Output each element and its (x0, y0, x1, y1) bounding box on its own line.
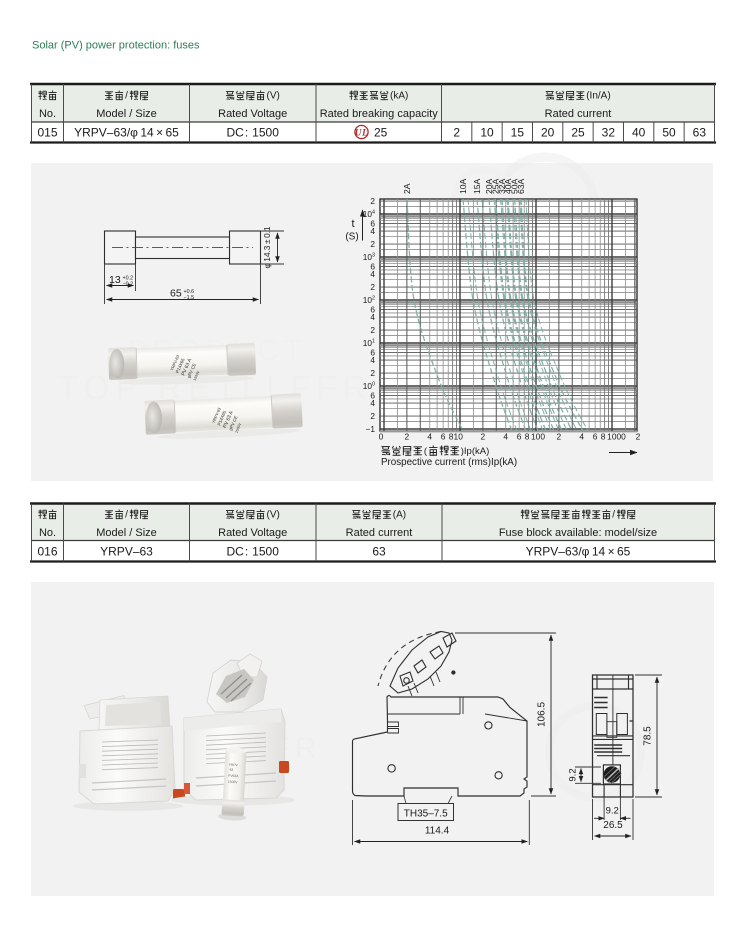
svg-text:Fuse block available: model/si: Fuse block available: model/size (499, 527, 657, 539)
svg-text:6: 6 (593, 432, 598, 442)
svg-text:/: / (125, 91, 128, 102)
svg-text:4: 4 (370, 226, 375, 236)
svg-text:t: t (351, 218, 354, 230)
svg-text:100: 100 (531, 432, 545, 442)
svg-text:2: 2 (636, 432, 641, 442)
svg-text:20: 20 (541, 126, 555, 140)
svg-text:U L: U L (355, 128, 368, 138)
svg-text:(kA): (kA) (390, 91, 408, 102)
svg-text:2: 2 (370, 411, 375, 421)
svg-text:(In/A): (In/A) (586, 91, 610, 102)
svg-text:4: 4 (370, 269, 375, 279)
svg-text:016: 016 (37, 545, 57, 559)
svg-text:2A: 2A (402, 183, 412, 194)
svg-text:26.5: 26.5 (603, 820, 623, 831)
svg-text:2: 2 (453, 126, 460, 140)
svg-text:78.5: 78.5 (643, 726, 654, 746)
svg-text:63: 63 (372, 545, 386, 559)
svg-text:15: 15 (511, 126, 525, 140)
svg-text:Rated breaking capacity: Rated breaking capacity (320, 108, 439, 120)
svg-text:9.2: 9.2 (568, 768, 579, 781)
svg-text:No.: No. (39, 527, 56, 539)
svg-text:YRPV–63: YRPV–63 (100, 545, 153, 559)
svg-text:Rated Voltage: Rated Voltage (218, 108, 287, 120)
svg-text:4: 4 (370, 355, 375, 365)
svg-text:−1.5: −1.5 (184, 295, 195, 301)
svg-text:8: 8 (601, 432, 606, 442)
svg-text:4: 4 (579, 432, 584, 442)
svg-text:015: 015 (37, 126, 57, 140)
svg-text:−0.2: −0.2 (123, 281, 134, 287)
svg-text:Model / Size: Model / Size (96, 108, 157, 120)
svg-text:2: 2 (557, 432, 562, 442)
svg-text:Prospective current (rms)Ip(kA: Prospective current (rms)Ip(kA) (381, 457, 517, 468)
svg-text:25: 25 (374, 126, 388, 140)
svg-text:(A): (A) (393, 510, 406, 521)
svg-text:/: / (125, 510, 128, 521)
svg-text:6: 6 (441, 432, 446, 442)
svg-text:4: 4 (503, 432, 508, 442)
svg-text:YRPV–63/φ 14 × 65: YRPV–63/φ 14 × 65 (526, 545, 631, 559)
svg-text:1500V: 1500V (228, 780, 239, 785)
svg-text:32: 32 (602, 126, 616, 140)
svg-text:PV63A: PV63A (228, 774, 239, 779)
svg-text:2: 2 (370, 196, 375, 206)
svg-text:YRPV–63/φ 14 × 65: YRPV–63/φ 14 × 65 (74, 126, 179, 140)
svg-text:40: 40 (632, 126, 646, 140)
svg-text:4: 4 (370, 312, 375, 322)
svg-text:10: 10 (480, 126, 494, 140)
svg-text:Model / Size: Model / Size (96, 527, 157, 539)
svg-text:(V): (V) (266, 510, 279, 521)
svg-text:25: 25 (571, 126, 585, 140)
svg-text:114.4: 114.4 (425, 826, 450, 837)
svg-text:1000: 1000 (607, 432, 626, 442)
svg-text:−1: −1 (366, 424, 376, 434)
svg-text:15A: 15A (472, 178, 482, 194)
svg-text:(V): (V) (266, 91, 279, 102)
svg-text:Rated current: Rated current (545, 108, 612, 120)
svg-text:2: 2 (370, 239, 375, 249)
svg-text:Rated current: Rated current (346, 527, 413, 539)
svg-text:10: 10 (454, 432, 464, 442)
svg-text:50: 50 (662, 126, 676, 140)
svg-text:0: 0 (379, 432, 384, 442)
svg-text:YRPV: YRPV (229, 763, 239, 768)
svg-text:(S): (S) (345, 232, 358, 243)
svg-text:Rated Voltage: Rated Voltage (218, 527, 287, 539)
svg-text:)Ip(kA): )Ip(kA) (461, 446, 490, 457)
svg-text:-63: -63 (228, 768, 233, 772)
svg-text:63: 63 (693, 126, 707, 140)
svg-text:63A: 63A (516, 178, 526, 194)
svg-text:8: 8 (525, 432, 530, 442)
svg-text:10A: 10A (458, 178, 468, 194)
svg-text:13: 13 (109, 274, 121, 286)
svg-text:2: 2 (405, 432, 410, 442)
svg-text:/: / (612, 510, 615, 521)
svg-text:φ 14.3 ± 0.1: φ 14.3 ± 0.1 (263, 226, 272, 268)
svg-text:2: 2 (370, 325, 375, 335)
svg-text:DC : 1500: DC : 1500 (227, 545, 280, 559)
svg-text:6: 6 (517, 432, 522, 442)
svg-text:Solar (PV) power protection: f: Solar (PV) power protection: fuses (32, 40, 200, 52)
svg-text:106.5: 106.5 (537, 702, 548, 727)
svg-text:2: 2 (481, 432, 486, 442)
svg-text:2: 2 (370, 368, 375, 378)
svg-text:2: 2 (370, 282, 375, 292)
svg-text:DC : 1500: DC : 1500 (227, 126, 280, 140)
svg-text:9.2: 9.2 (606, 806, 619, 817)
svg-text:4: 4 (370, 398, 375, 408)
svg-text:65: 65 (170, 288, 182, 300)
svg-text:No.: No. (39, 108, 56, 120)
svg-text:4: 4 (427, 432, 432, 442)
svg-text:TH35–7.5: TH35–7.5 (404, 809, 448, 820)
